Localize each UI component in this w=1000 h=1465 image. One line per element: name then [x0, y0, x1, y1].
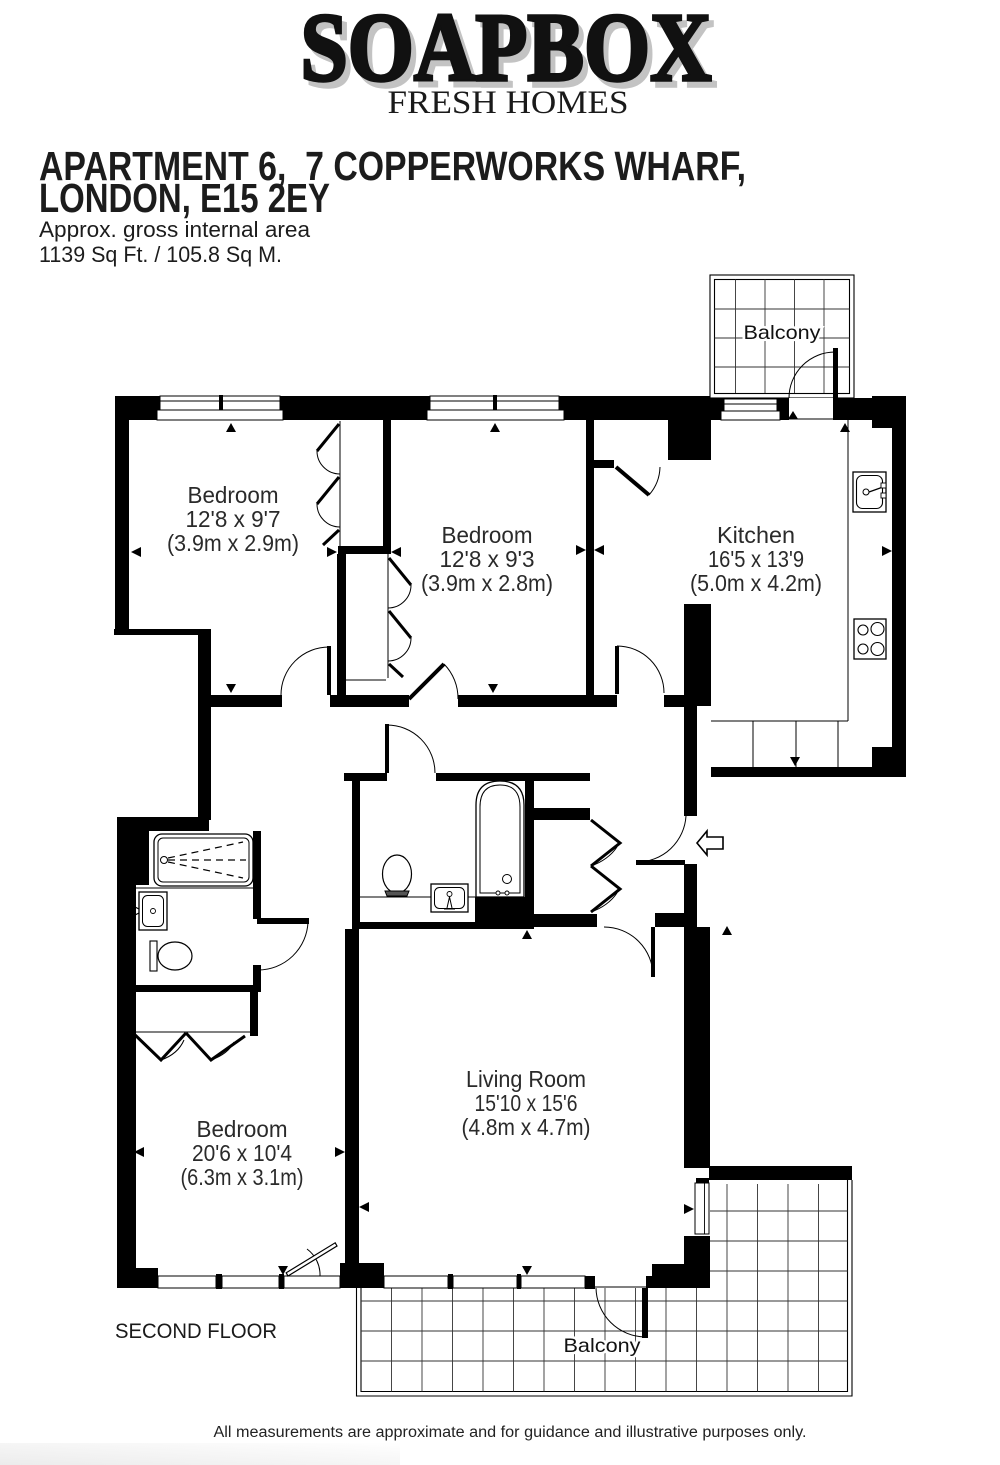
svg-text:20'6 x 10'4: 20'6 x 10'4 [192, 1140, 292, 1166]
svg-text:Balcony: Balcony [564, 1335, 641, 1357]
svg-text:Bedroom: Bedroom [197, 1116, 288, 1142]
svg-text:All measurements are approxima: All measurements are approximate and for… [214, 1424, 807, 1441]
svg-text:Kitchen: Kitchen [717, 522, 795, 548]
svg-text:FRESH HOMES: FRESH HOMES [388, 85, 629, 121]
svg-text:Balcony: Balcony [744, 322, 821, 344]
svg-text:Bedroom: Bedroom [188, 482, 279, 508]
svg-text:(3.9m x 2.8m): (3.9m x 2.8m) [421, 570, 553, 596]
svg-text:Approx. gross internal area: Approx. gross internal area [39, 217, 311, 242]
svg-text:16'5 x 13'9: 16'5 x 13'9 [708, 546, 804, 572]
svg-text:1139 Sq Ft. / 105.8 Sq M.: 1139 Sq Ft. / 105.8 Sq M. [39, 242, 282, 267]
svg-text:15'10 x 15'6: 15'10 x 15'6 [475, 1090, 578, 1116]
svg-text:Living Room: Living Room [466, 1066, 586, 1092]
svg-text:LONDON, E15 2EY: LONDON, E15 2EY [39, 175, 330, 221]
svg-text:(3.9m x 2.9m): (3.9m x 2.9m) [167, 530, 299, 556]
svg-text:(5.0m x 4.2m): (5.0m x 4.2m) [690, 570, 822, 596]
svg-text:12'8 x 9'7: 12'8 x 9'7 [186, 506, 281, 532]
svg-text:12'8 x 9'3: 12'8 x 9'3 [440, 546, 535, 572]
svg-text:(4.8m x 4.7m): (4.8m x 4.7m) [462, 1114, 591, 1140]
svg-text:Bedroom: Bedroom [442, 522, 533, 548]
svg-text:SECOND FLOOR: SECOND FLOOR [115, 1319, 277, 1343]
svg-text:(6.3m x 3.1m): (6.3m x 3.1m) [181, 1164, 304, 1190]
